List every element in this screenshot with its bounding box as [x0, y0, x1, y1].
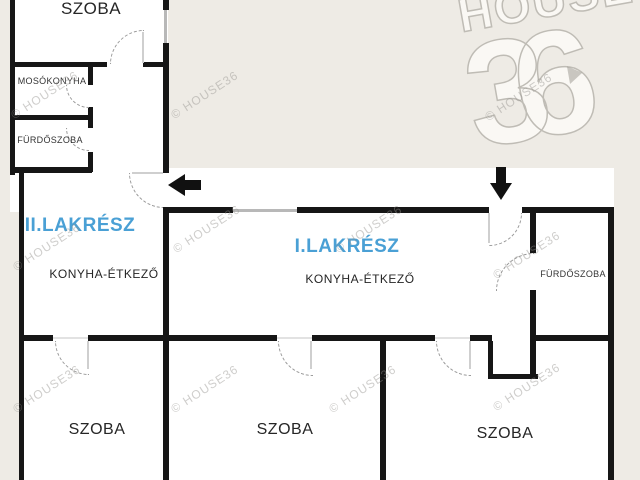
wall-bath2-south	[10, 167, 92, 173]
wall-mid-c	[169, 335, 277, 341]
wall-leftwing-east-b	[163, 43, 169, 173]
room-label-furdoszoba-left: FÜRDŐSZOBA	[17, 135, 83, 145]
entrance-arrow-down-icon	[490, 183, 512, 200]
unit1-kitchen-label: KONYHA-ÉTKEZŐ	[305, 272, 414, 286]
room-label-szoba-left: SZOBA	[69, 421, 126, 439]
wall-outer-right	[608, 207, 614, 480]
room-label-szoba-middle: SZOBA	[257, 421, 314, 439]
wall-mid-a	[19, 335, 53, 341]
threshold-door2	[277, 337, 312, 339]
watermark: © HOUSE36	[168, 68, 240, 122]
wall-center-divider	[163, 207, 169, 480]
wall-mid-b	[88, 335, 169, 341]
unit2-label: II.LAKRÉSZ	[25, 215, 136, 237]
wall-leftwing-east-a	[163, 0, 169, 10]
entrance-arrow-left-shaft	[184, 180, 201, 190]
house36-logo-triangle-icon	[567, 64, 584, 84]
threshold-door1	[53, 337, 88, 339]
wall-bedroom-divider	[380, 341, 386, 480]
wall-bath2-east-a	[88, 120, 93, 128]
window-main-top	[233, 209, 297, 212]
wall-mid-d	[312, 335, 435, 341]
unit2-kitchen-label: KONYHA-ÉTKEZŐ	[49, 267, 158, 281]
entrance-arrow-left-icon	[168, 174, 185, 196]
wall-outer-left-bottom	[19, 168, 24, 480]
threshold-door3	[435, 337, 470, 339]
room-label-top-left-szoba: SZOBA	[61, 0, 121, 19]
wall-outer-left-top	[10, 0, 15, 175]
room-label-furdoszoba-right: FÜRDŐSZOBA	[540, 269, 606, 279]
wall-mid-f	[533, 335, 614, 341]
floor-plan: SZOBA MOSÓKONYHA FÜRDŐSZOBA II.LAKRÉSZ K…	[0, 0, 640, 480]
wall-laundry-east-a	[88, 62, 93, 85]
room-label-szoba-right: SZOBA	[477, 425, 534, 443]
window-leftwing	[164, 10, 167, 43]
